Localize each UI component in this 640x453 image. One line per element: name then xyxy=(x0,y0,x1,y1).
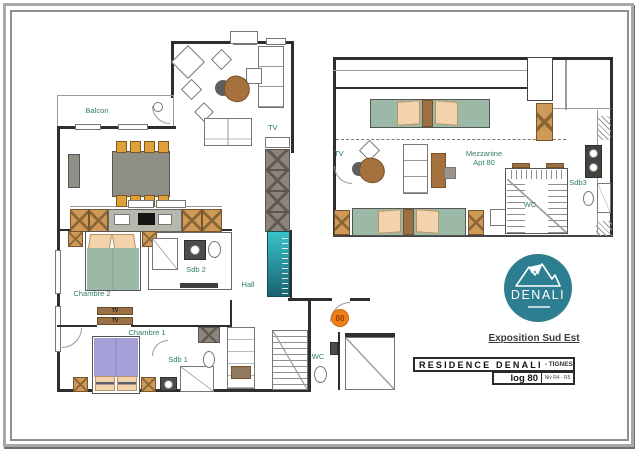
cooktop xyxy=(138,213,155,225)
bed-mezzanine-bottom xyxy=(352,208,466,236)
apartment-number-badge: 80 xyxy=(331,309,349,327)
handrail xyxy=(546,163,564,168)
kitchen-hood xyxy=(128,200,154,208)
void-line xyxy=(333,70,550,71)
interior-stairs xyxy=(267,231,290,297)
nightstand xyxy=(73,377,88,392)
mountain-icon xyxy=(515,262,561,288)
window xyxy=(75,124,101,130)
lounge-chair xyxy=(171,45,205,79)
room-label-sdb2: Sdb 2 xyxy=(186,266,206,274)
room-label-sdb3: Sdb3 xyxy=(569,179,587,187)
nightstand xyxy=(334,210,350,235)
tv-cabinet: TV xyxy=(97,317,133,325)
bed-mezzanine-top xyxy=(370,99,490,128)
denali-logo: DENALI xyxy=(504,254,572,322)
pillow xyxy=(117,376,137,391)
balcony-table xyxy=(153,102,163,112)
wall-segment xyxy=(350,298,370,301)
wall-segment xyxy=(288,298,332,301)
wall-segment xyxy=(171,41,174,98)
sink-basin xyxy=(190,245,200,255)
room-label-wc: WC xyxy=(524,201,537,209)
sofa xyxy=(403,144,428,194)
title-block-row1: RESIDENCE DENALI - TIGNES xyxy=(413,357,575,372)
door-swing xyxy=(334,166,352,184)
toilet xyxy=(203,351,215,368)
bed-chambre1 xyxy=(92,336,140,394)
wall-segment xyxy=(57,325,97,327)
common-stairs xyxy=(272,330,308,390)
railing-hatch xyxy=(596,221,612,236)
room-label-tv: TV xyxy=(268,124,278,132)
room-label-balcon: Balcon xyxy=(86,107,109,115)
pillow xyxy=(378,209,401,234)
hall-cabinet xyxy=(198,327,220,343)
bed-chambre2 xyxy=(85,231,141,291)
room-label-sdb1: Sdb 1 xyxy=(168,356,188,364)
shower xyxy=(152,238,178,270)
sideboard xyxy=(68,154,80,188)
room-label-tv: TV xyxy=(334,150,344,158)
duvet xyxy=(87,248,139,290)
desk-chair xyxy=(444,167,456,179)
bathroom-counter xyxy=(180,283,218,288)
pillow xyxy=(95,376,115,391)
closet-box xyxy=(231,366,251,379)
room-label-wc: WC xyxy=(312,353,325,361)
kitchen-sink xyxy=(114,214,130,225)
window xyxy=(118,124,148,130)
sink-basin xyxy=(589,163,598,172)
room-label-chambre1: Chambre 1 xyxy=(128,329,165,337)
kitchen-cabinet xyxy=(202,209,222,232)
pillow xyxy=(112,234,136,249)
dining-chair xyxy=(116,141,127,153)
handrail xyxy=(512,163,530,168)
stair-diagonal xyxy=(273,331,307,389)
wall-segment xyxy=(565,60,567,110)
sink-basin xyxy=(589,149,598,158)
sink-basin xyxy=(164,380,173,389)
railing-hatch xyxy=(598,116,611,140)
wardrobe-unit xyxy=(265,170,290,191)
wall-segment xyxy=(333,57,613,60)
tv-cabinet-label: TV xyxy=(112,308,118,314)
corner-sofa-module xyxy=(230,31,258,44)
pillow xyxy=(416,209,439,234)
duvet xyxy=(94,338,138,377)
window xyxy=(55,306,61,352)
dining-chair xyxy=(158,141,169,153)
title-block-row2: log 80 Niv R4 - R5 xyxy=(492,371,575,385)
wardrobe-unit xyxy=(265,191,290,212)
small-sink xyxy=(330,342,338,355)
residence-location: - TIGNES xyxy=(545,361,573,368)
window xyxy=(55,250,61,294)
sofa xyxy=(204,118,252,146)
tv-cabinet-label: TV xyxy=(112,318,118,324)
toilet xyxy=(314,366,327,383)
bed-divider xyxy=(403,209,414,235)
residence-name: RESIDENCE DENALI xyxy=(419,360,543,370)
door-swing xyxy=(152,340,168,356)
plan-title-line1: Mezzanine xyxy=(466,150,502,158)
kitchen-hood xyxy=(156,200,186,208)
mezzanine-edge-dashed xyxy=(336,139,566,140)
wall-segment xyxy=(338,332,340,390)
dining-chair xyxy=(116,195,127,207)
kitchen-cabinet xyxy=(182,209,202,232)
wall-segment xyxy=(308,300,311,392)
shower xyxy=(180,366,214,392)
neighbor-unit xyxy=(345,337,395,390)
nightstand xyxy=(141,377,156,392)
logo-tagline-mark xyxy=(528,306,550,308)
wall-segment xyxy=(291,41,294,153)
kitchen-cabinet xyxy=(89,209,108,232)
exposition-note: Exposition Sud Est xyxy=(488,333,579,344)
dining-table xyxy=(112,151,170,197)
wardrobe-unit xyxy=(265,149,290,170)
unit-number: log 80 xyxy=(494,373,541,384)
pouf xyxy=(181,79,202,100)
wall-segment xyxy=(290,230,292,300)
kitchen-cabinet xyxy=(70,209,89,232)
shower xyxy=(597,183,611,213)
column-closet xyxy=(527,57,553,101)
pillow xyxy=(435,100,458,126)
plan-title-line2: Apt 80 xyxy=(473,159,495,167)
closet xyxy=(227,327,255,389)
window xyxy=(266,38,286,45)
stair-diagonal xyxy=(507,179,567,233)
wardrobe xyxy=(536,103,553,141)
toilet xyxy=(208,241,221,258)
nightstand xyxy=(68,231,83,247)
pouf xyxy=(211,49,232,70)
pillow xyxy=(88,234,112,249)
door-swing xyxy=(62,328,82,348)
apartment-number: 80 xyxy=(336,314,345,323)
armchair xyxy=(356,155,388,186)
wardrobe-unit xyxy=(265,212,290,232)
floor-plan-sheet: TV TV Balcon TV Chambre 2 Sdb 2 Hall xyxy=(0,0,640,453)
level-note: Niv R4 - R5 xyxy=(542,375,573,381)
logo-wordmark: DENALI xyxy=(504,288,572,302)
room-label-chambre2: Chambre 2 xyxy=(73,290,110,298)
wall-segment xyxy=(333,87,550,89)
nightstand xyxy=(468,210,484,235)
kitchen-module xyxy=(158,214,172,225)
pillow xyxy=(397,100,420,126)
stair-treads xyxy=(282,234,288,294)
toilet xyxy=(583,191,594,206)
dining-chair xyxy=(144,141,155,153)
cabinet-top xyxy=(265,137,290,148)
room-label-hall: Hall xyxy=(242,281,255,289)
bed-divider xyxy=(422,100,433,127)
stair-flight xyxy=(507,170,566,179)
tv-cabinet: TV xyxy=(97,307,133,315)
side-table xyxy=(246,68,262,84)
wall-segment xyxy=(553,108,611,109)
dining-chair xyxy=(130,141,141,153)
